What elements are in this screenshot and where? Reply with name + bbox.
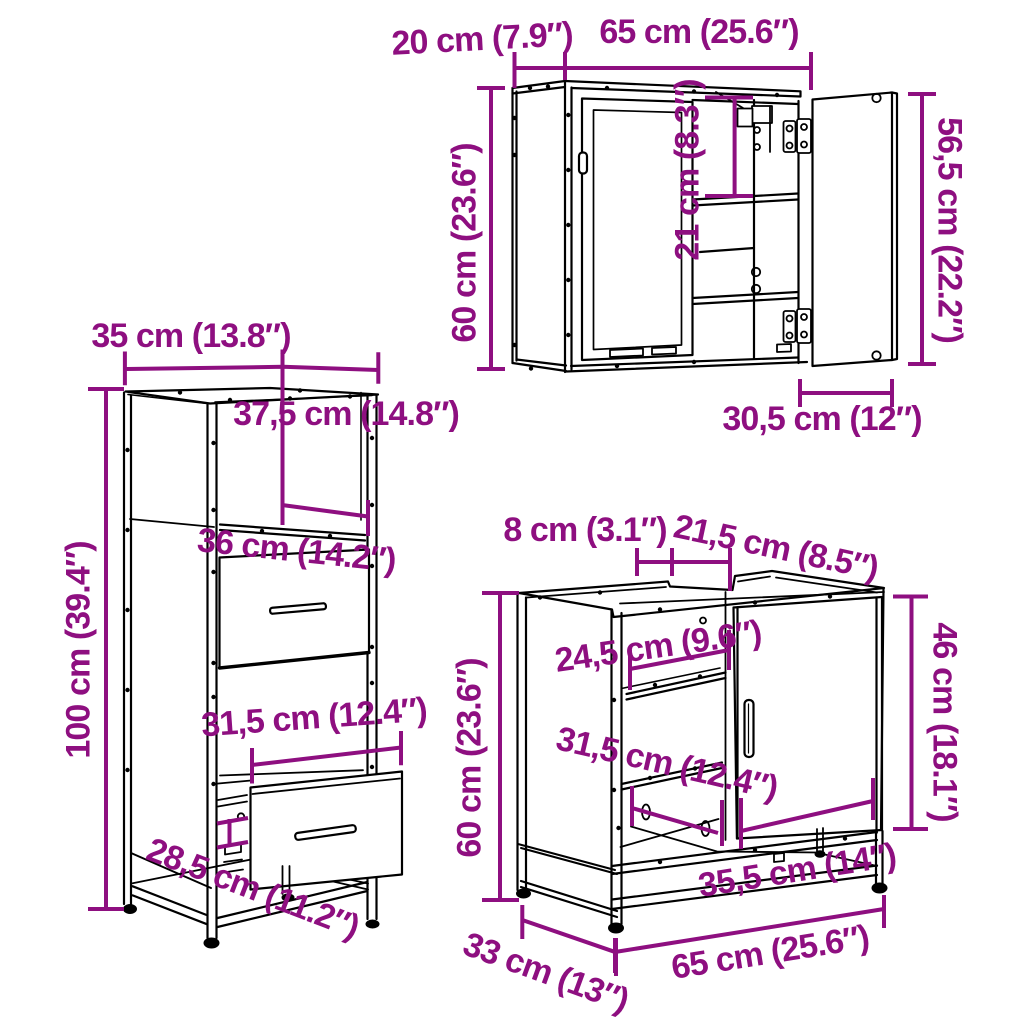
svg-text:21 cm (8.3″): 21 cm (8.3″) [669,79,707,260]
svg-text:37,5 cm (14.8″): 37,5 cm (14.8″) [233,395,459,433]
svg-text:46 cm (18.1″): 46 cm (18.1″) [926,622,964,821]
svg-text:60 cm (23.6″): 60 cm (23.6″) [446,143,484,342]
svg-text:65 cm (25.6″): 65 cm (25.6″) [599,13,798,51]
svg-text:56,5 cm (22.2″): 56,5 cm (22.2″) [931,117,969,343]
svg-text:30,5 cm (12″): 30,5 cm (12″) [722,400,921,438]
svg-text:35 cm (13.8″): 35 cm (13.8″) [91,317,290,355]
svg-text:60 cm (23.6″): 60 cm (23.6″) [451,658,489,857]
svg-text:100 cm (39.4″): 100 cm (39.4″) [60,541,98,758]
svg-text:8 cm (3.1″): 8 cm (3.1″) [503,511,666,549]
